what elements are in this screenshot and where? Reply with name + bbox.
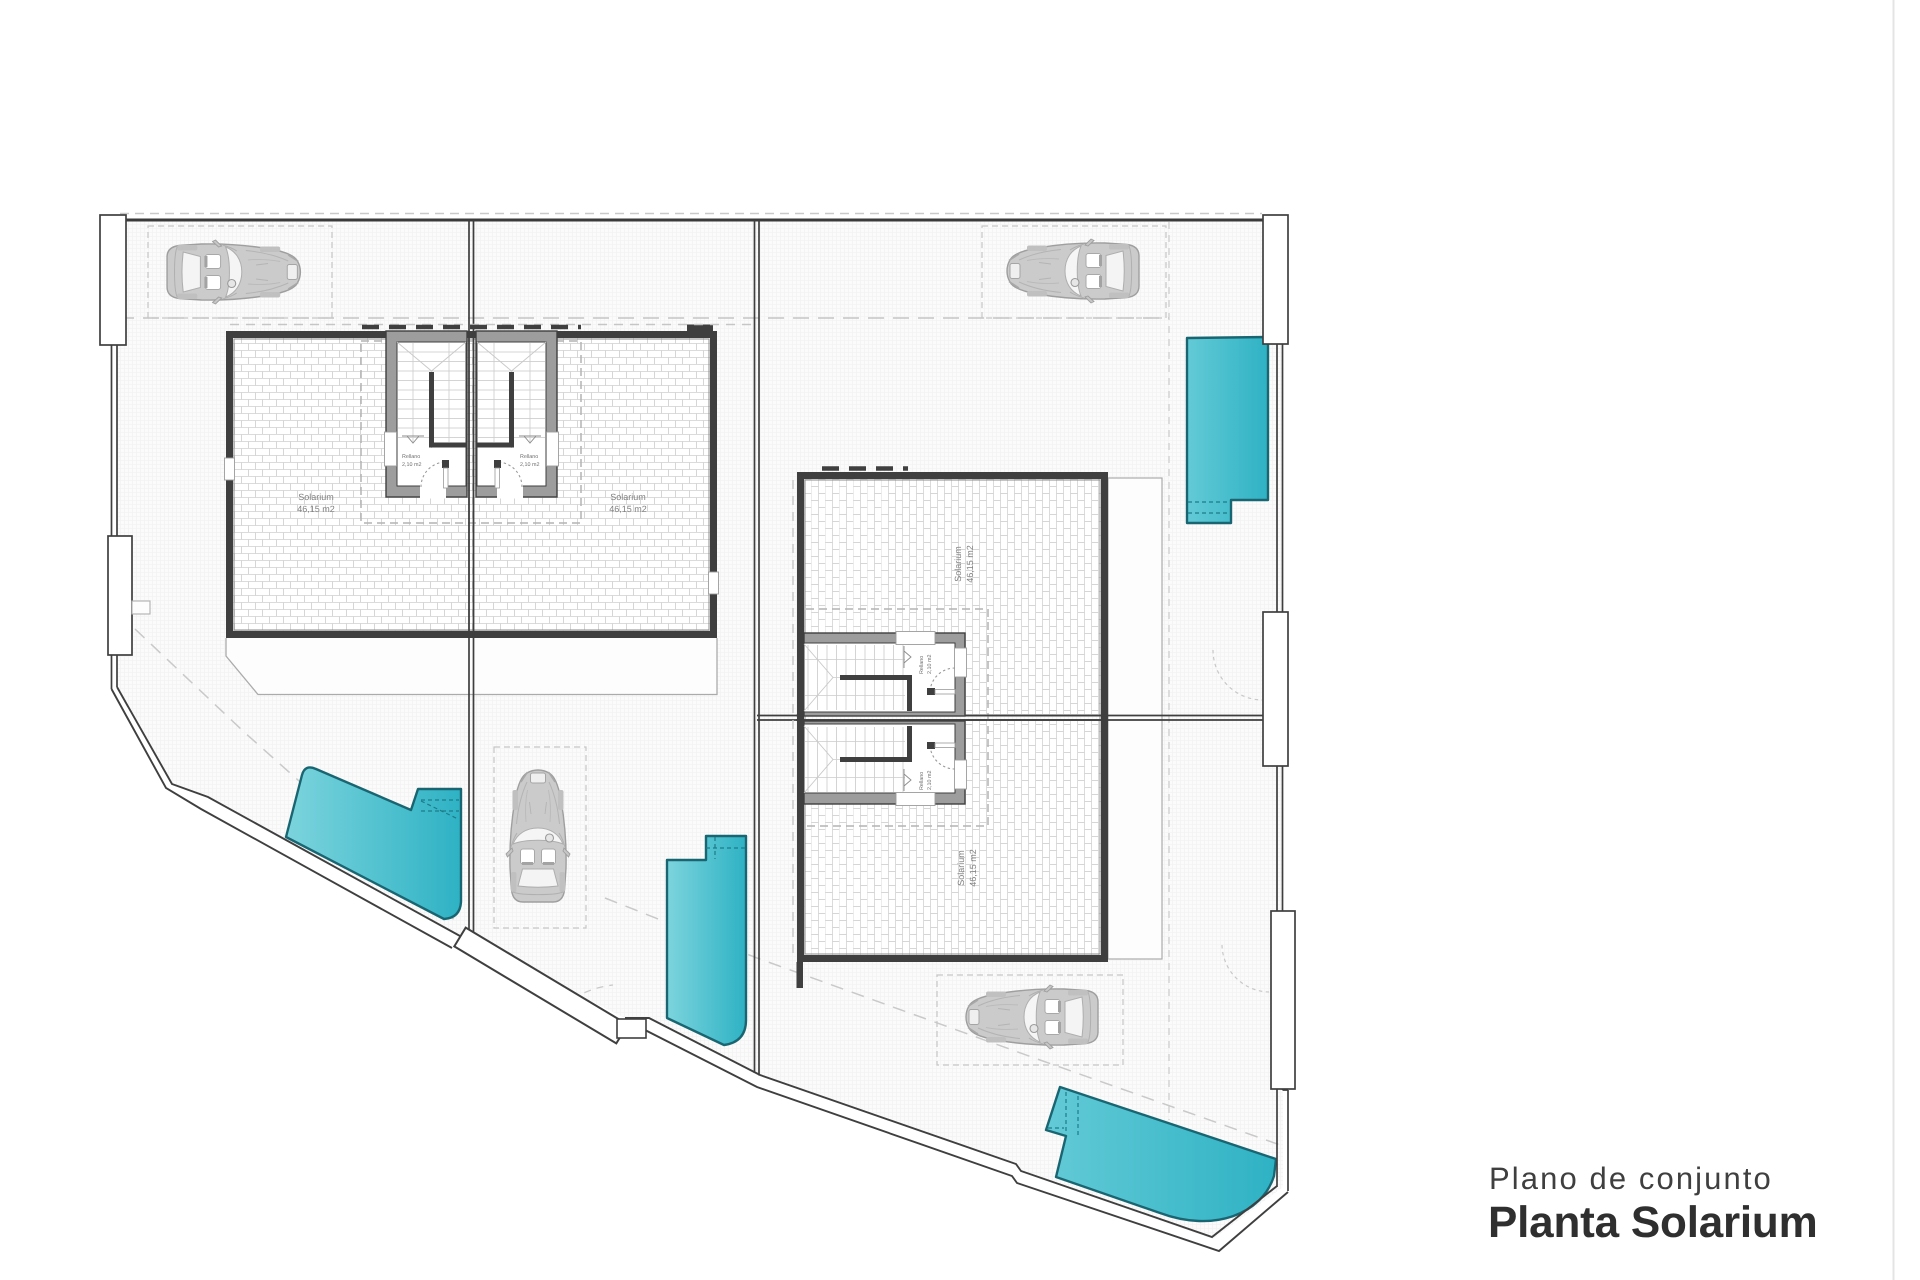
svg-text:2,10 m2: 2,10 m2 xyxy=(927,655,933,674)
svg-text:Solarium: Solarium xyxy=(298,492,334,502)
svg-text:Rellano: Rellano xyxy=(919,656,925,674)
svg-text:Solarium: Solarium xyxy=(956,850,966,886)
svg-text:Plano de conjunto: Plano de conjunto xyxy=(1489,1161,1773,1196)
svg-text:2,10 m2: 2,10 m2 xyxy=(402,462,421,468)
svg-text:Rellano: Rellano xyxy=(919,772,925,790)
svg-text:46,15 m2: 46,15 m2 xyxy=(968,849,978,887)
svg-text:Solarium: Solarium xyxy=(953,546,963,582)
svg-text:46,15 m2: 46,15 m2 xyxy=(965,545,975,583)
svg-text:Solarium: Solarium xyxy=(610,492,646,502)
svg-text:Rellano: Rellano xyxy=(402,454,420,460)
svg-text:46,15 m2: 46,15 m2 xyxy=(609,504,647,514)
svg-text:Rellano: Rellano xyxy=(520,454,538,460)
svg-text:46,15 m2: 46,15 m2 xyxy=(297,504,335,514)
svg-text:2,10 m2: 2,10 m2 xyxy=(927,771,933,790)
svg-text:Planta Solarium: Planta Solarium xyxy=(1488,1198,1818,1247)
svg-text:2,10 m2: 2,10 m2 xyxy=(520,462,539,468)
